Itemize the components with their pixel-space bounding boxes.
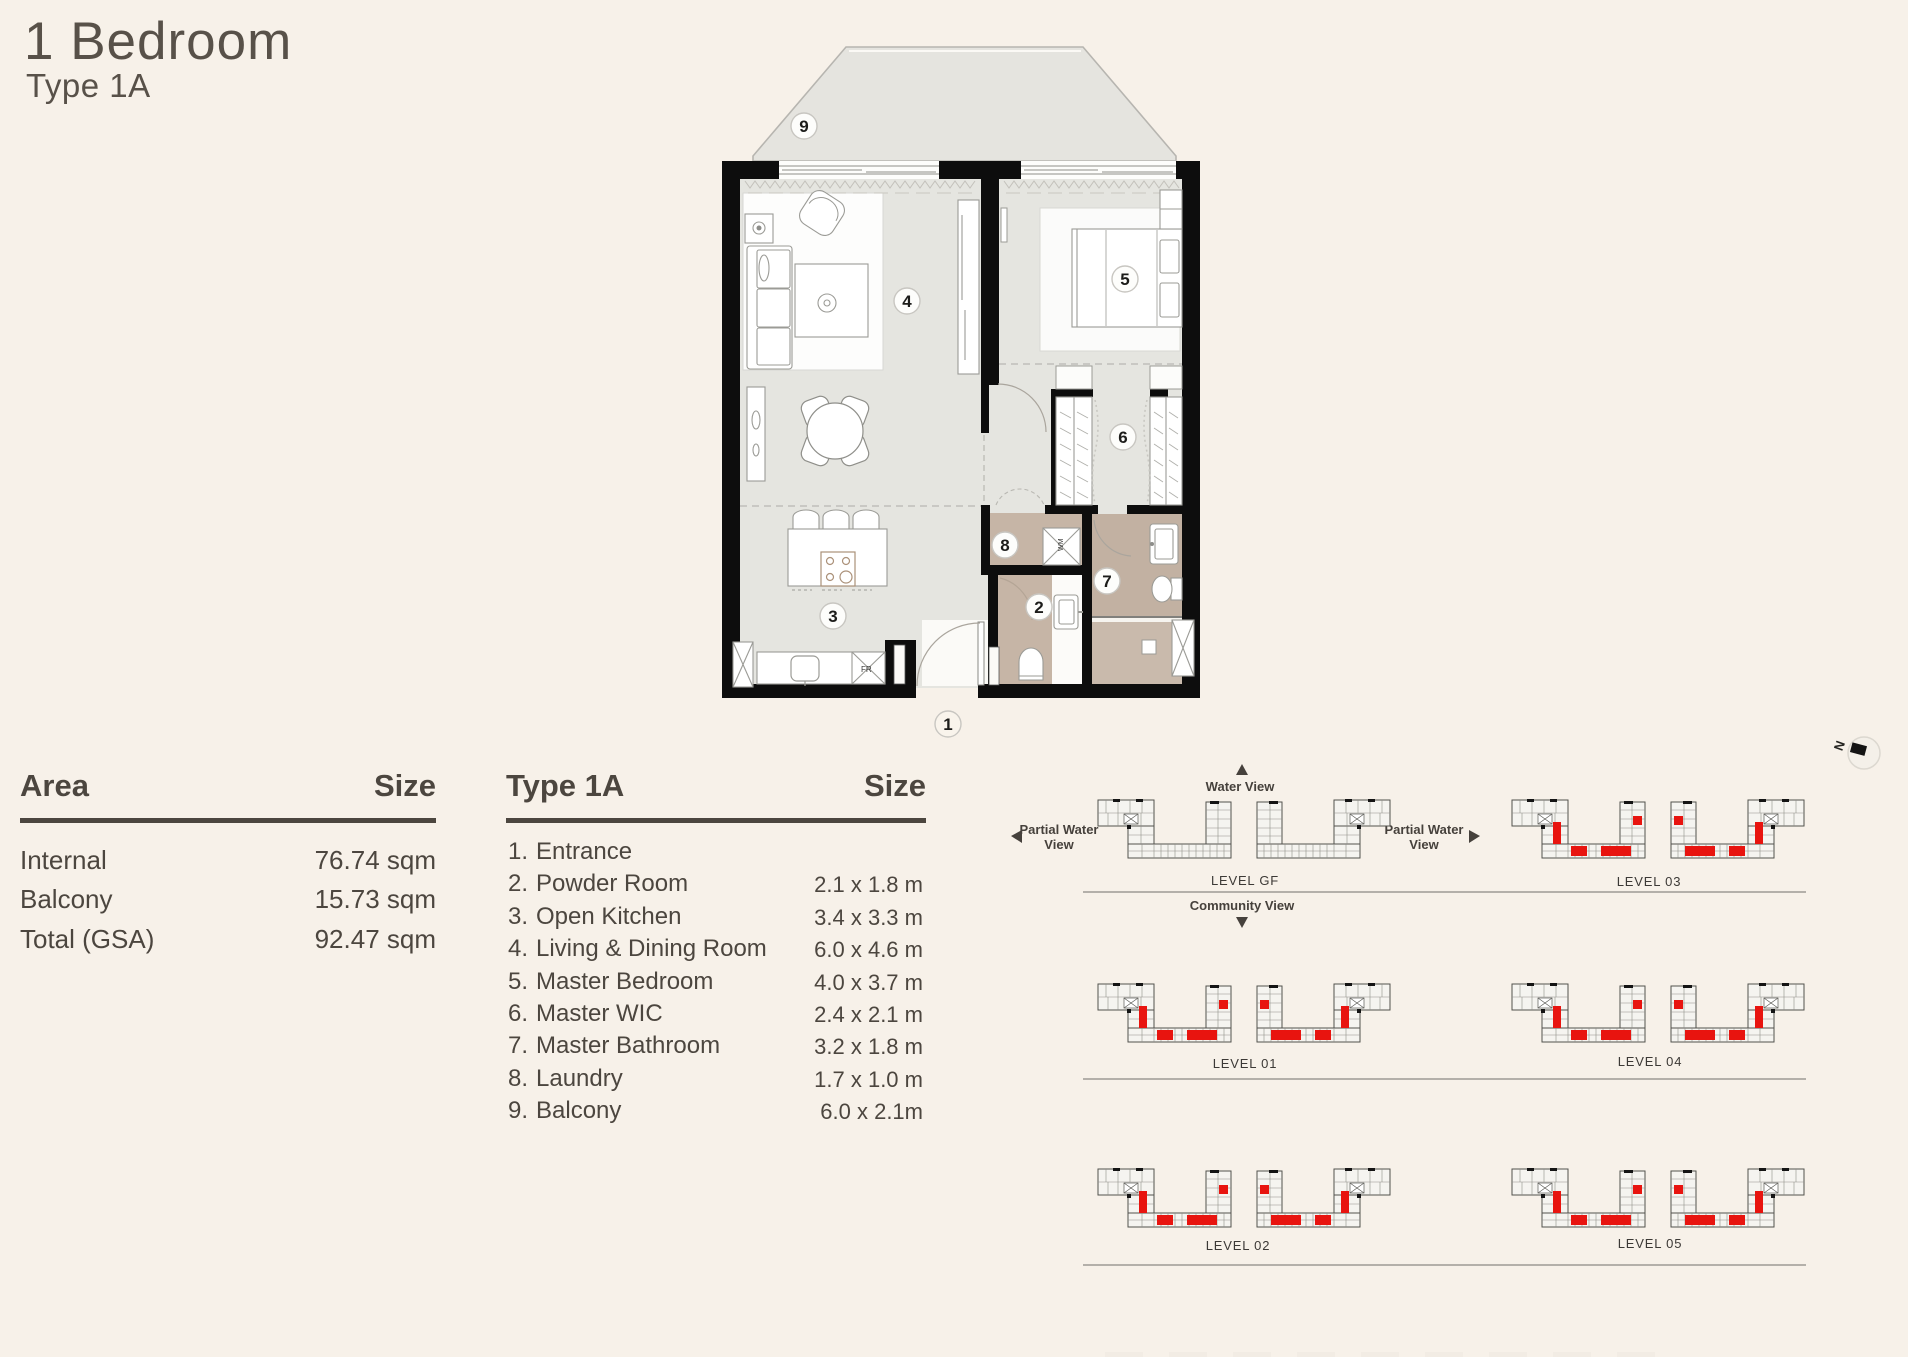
svg-text:1: 1 bbox=[943, 715, 952, 734]
svg-text:LEVEL 04: LEVEL 04 bbox=[1618, 1054, 1682, 1069]
svg-text:6: 6 bbox=[1118, 428, 1127, 447]
svg-text:LEVEL 05: LEVEL 05 bbox=[1618, 1236, 1682, 1251]
svg-text:7: 7 bbox=[1102, 572, 1111, 591]
svg-text:View: View bbox=[1044, 837, 1074, 852]
svg-text:LEVEL 02: LEVEL 02 bbox=[1206, 1238, 1270, 1253]
svg-text:8: 8 bbox=[1000, 536, 1009, 555]
svg-text:2: 2 bbox=[1034, 598, 1043, 617]
svg-text:Partial Water: Partial Water bbox=[1385, 822, 1464, 837]
svg-text:FR: FR bbox=[861, 665, 872, 674]
svg-text:Water View: Water View bbox=[1206, 779, 1276, 794]
svg-text:3: 3 bbox=[828, 607, 837, 626]
svg-text:4: 4 bbox=[902, 292, 912, 311]
svg-text:View: View bbox=[1409, 837, 1439, 852]
svg-text:N: N bbox=[1831, 739, 1848, 753]
svg-text:LEVEL 01: LEVEL 01 bbox=[1213, 1056, 1277, 1071]
svg-text:LEVEL GF: LEVEL GF bbox=[1211, 873, 1279, 888]
svg-text:Community View: Community View bbox=[1190, 898, 1295, 913]
svg-text:5: 5 bbox=[1120, 270, 1129, 289]
svg-text:WM: WM bbox=[1058, 538, 1065, 551]
svg-text:9: 9 bbox=[799, 117, 808, 136]
svg-text:LEVEL 03: LEVEL 03 bbox=[1617, 874, 1681, 889]
svg-text:Partial Water: Partial Water bbox=[1020, 822, 1099, 837]
